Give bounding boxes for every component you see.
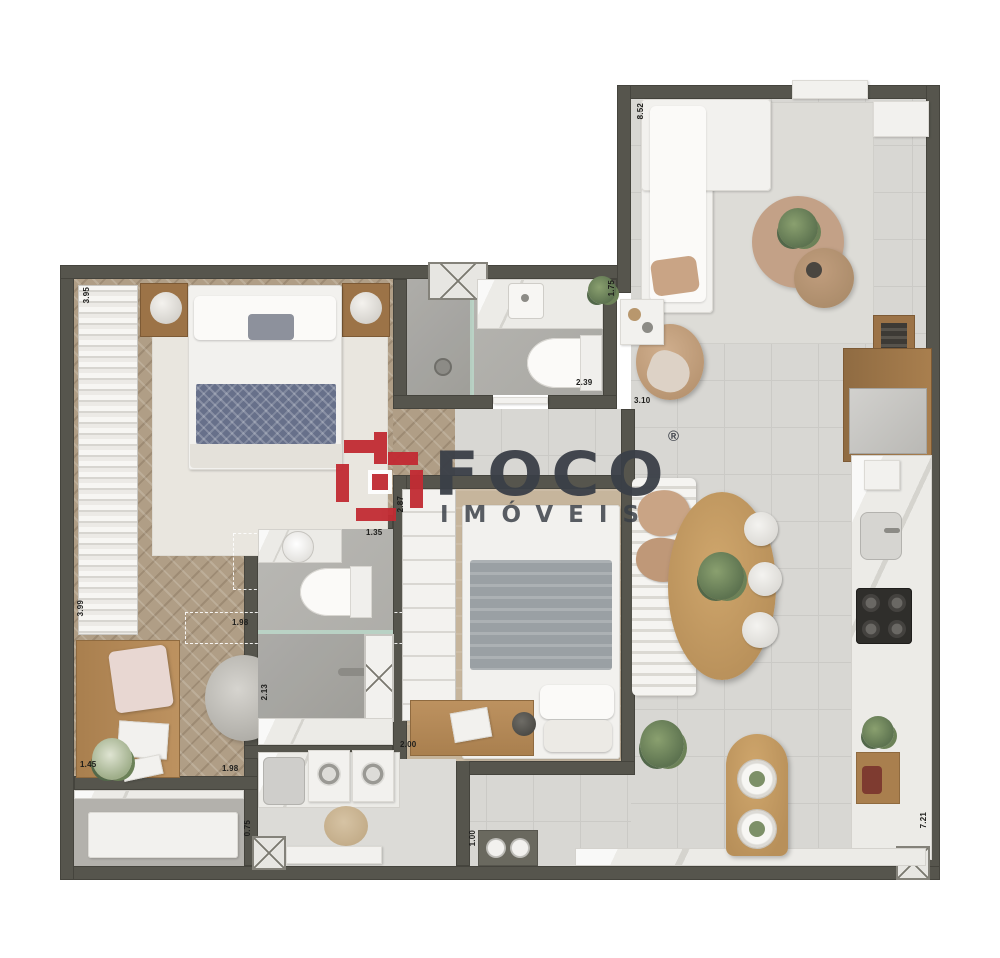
brand-subtitle: IMÓVEIS: [440, 502, 654, 528]
floor-plan: 3.95 3.99 1.45 1.98 1.98 2.13 2.00 1.00 …: [0, 0, 1000, 958]
console-bowl-a-icon: [628, 308, 641, 321]
duct-pipe-a-icon: [486, 838, 506, 858]
coffee-machine: [864, 460, 900, 490]
balcony-shaft-icon: [252, 836, 286, 870]
laundry-rug: [324, 806, 368, 846]
bath2-threshold: [258, 718, 393, 745]
facade-box: [792, 80, 868, 99]
entry-console: [620, 299, 664, 345]
wall-bottom: [60, 866, 940, 880]
kitchen-plant-icon: [862, 716, 894, 748]
dining-centerpiece-icon: [698, 552, 744, 600]
living-window-unit: [873, 101, 929, 137]
dryer-door-icon: [361, 762, 385, 786]
burner-2-icon: [888, 594, 906, 612]
dim-label: 2.13: [260, 684, 269, 700]
bed-accent-pillow: [248, 314, 294, 340]
wall-bath1-bottom-b: [548, 395, 617, 409]
dining-chair-3: [742, 612, 778, 648]
fridge: [849, 388, 927, 454]
bath2-cabinet: [364, 634, 394, 722]
bedroom2-blanket: [470, 560, 612, 670]
food-2-icon: [749, 821, 765, 837]
dim-label: 1.75: [607, 280, 616, 296]
dim-label: 8.52: [636, 103, 645, 119]
dining-chair-2: [748, 562, 782, 596]
dim-label: 2.00: [400, 740, 416, 749]
foco-logo-icon: [330, 428, 428, 528]
desk-stool: [512, 712, 536, 736]
registered-mark: ®: [668, 428, 679, 445]
console-bowl-b-icon: [642, 322, 653, 333]
wall-bath1-left: [393, 279, 407, 409]
laundry-sink: [263, 757, 305, 805]
bath2-toilet: [300, 568, 356, 616]
coffee-table-small: [794, 248, 854, 308]
dim-label: 3.95: [82, 287, 91, 303]
desk-flowers-icon: [92, 738, 132, 780]
bed-footer: [190, 444, 342, 468]
wall-top-right: [617, 85, 940, 99]
food-1-icon: [749, 771, 765, 787]
kitchen-faucet-icon: [884, 528, 900, 533]
bath1-door-leaf: [493, 397, 548, 404]
watermark-logo: Foco ® IMÓVEIS: [330, 428, 690, 533]
wall-living-left: [617, 85, 631, 293]
lamp-left-icon: [150, 292, 182, 324]
laundry-window: [286, 846, 382, 864]
kitchen-sink: [860, 512, 902, 560]
balcony-bench: [88, 812, 238, 858]
floor-plant-icon: [640, 720, 684, 768]
dim-label: 2.39: [576, 378, 592, 387]
dining-chair-1: [744, 512, 778, 546]
bath2-cistern: [350, 566, 372, 618]
shower-drain-icon: [436, 360, 450, 374]
dim-label: 1.98: [222, 764, 238, 773]
bath2-sink: [282, 531, 314, 563]
bedroom1-curtain: [78, 285, 138, 635]
brand-name: Foco: [434, 439, 672, 510]
dim-label: 1.45: [80, 760, 96, 769]
wall-top-left: [60, 265, 631, 279]
bedroom2-pillow-b: [544, 720, 612, 752]
bath1-faucet-icon: [521, 294, 529, 302]
wall-balcony-top: [74, 776, 258, 790]
dim-label: 7.21: [919, 812, 928, 828]
wall-left: [60, 265, 74, 880]
dim-label: 0.75: [243, 820, 252, 836]
coffee-table-plant-icon: [778, 208, 818, 248]
bed-blanket: [196, 384, 336, 444]
dim-label: 1.00: [468, 830, 477, 846]
burner-1-icon: [862, 594, 880, 612]
wall-laundry-right: [456, 745, 470, 866]
washer-door-icon: [317, 762, 341, 786]
desk-chair: [108, 644, 174, 713]
dim-label: 3.99: [76, 600, 85, 616]
kettle-icon: [862, 766, 882, 794]
burner-4-icon: [888, 620, 906, 638]
balcony-edge: [74, 790, 244, 799]
bedroom2-pillow-a: [540, 685, 614, 719]
wall-bath1-bottom-a: [393, 395, 493, 409]
lamp-right-icon: [350, 292, 382, 324]
decor-bowl-icon: [806, 262, 822, 278]
sofa-throw-pillow: [650, 255, 701, 297]
dim-label: 1.98: [232, 618, 248, 627]
burner-3-icon: [862, 620, 880, 638]
dim-label: 3.10: [634, 396, 650, 405]
duct-pipe-b-icon: [510, 838, 530, 858]
